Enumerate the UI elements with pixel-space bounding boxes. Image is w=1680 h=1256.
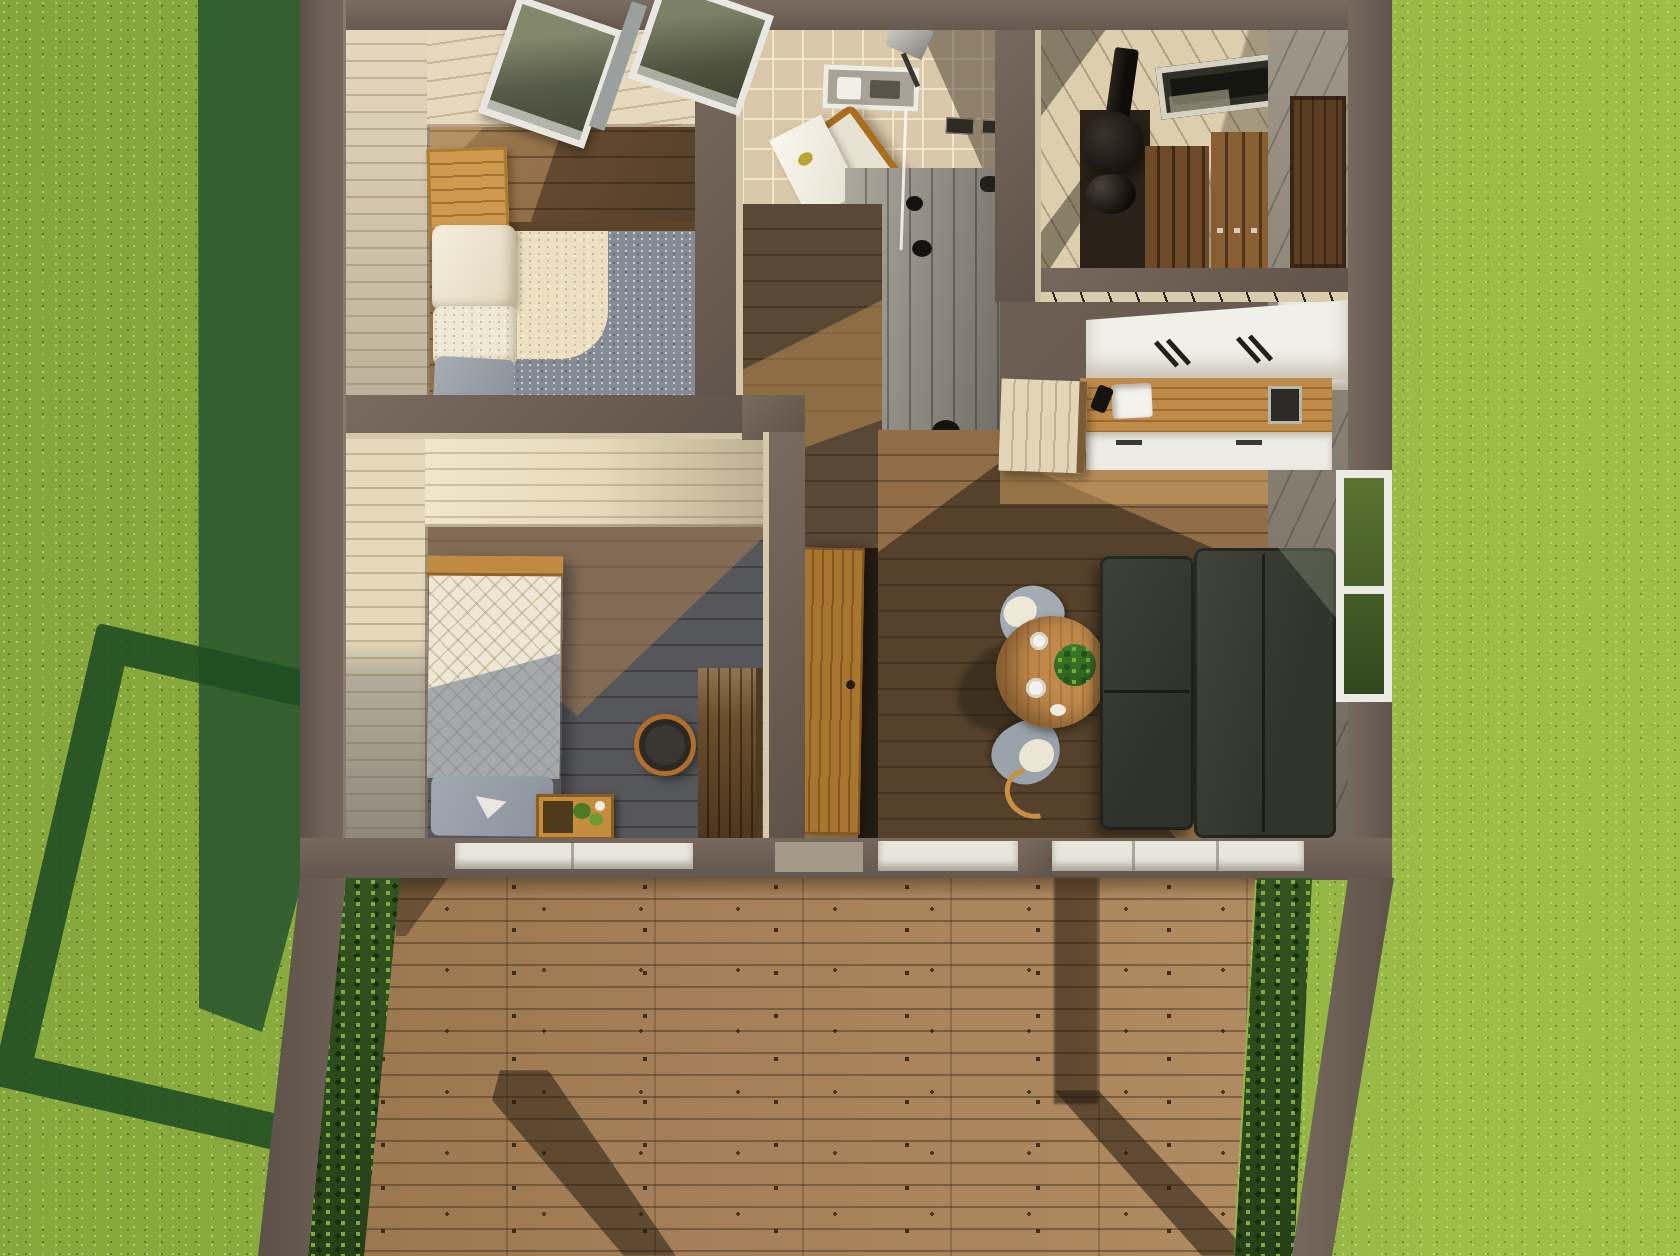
window-mullion [1344,586,1384,594]
wall-outlets [1268,386,1302,424]
slatted-side-table [698,668,762,838]
sofa-chaise-seam [1104,690,1190,693]
sofa-main-seam [1262,554,1265,832]
wall-bed1-bed2-divider [345,395,765,439]
bed2-blanket-shadow [427,575,561,778]
bedroom1-wall-left [345,28,430,438]
table-cup-2 [1026,678,1046,698]
right-wall-window [1336,470,1392,702]
sofa-sunlit-corner [1278,548,1336,618]
dining-table [996,616,1108,728]
outer-wall-right [1348,0,1392,878]
bed2-blanket [427,575,561,778]
crate-nightstand [536,794,614,840]
living-window-bench-2 [1052,841,1304,871]
drain-2 [912,240,932,257]
kitchen-cabinets-white [1086,432,1332,470]
table-cup-1 [1030,632,1048,650]
sauna-bench-lower [1145,146,1209,268]
bench-seam-3 [1216,841,1219,871]
bench-seam-2 [1132,841,1135,871]
living-window-bench-1 [878,841,1018,871]
kitchen-faucet [1090,384,1115,414]
outer-wall-left [300,0,346,878]
kitchen-backwall-tick-band [1000,292,1348,302]
bench-pier [1018,840,1052,876]
outer-wall-top [300,0,1392,30]
round-stool [634,714,696,776]
entry-threshold [775,842,863,872]
bedroom2-wall-left [345,438,428,838]
sauna-stove [1082,112,1144,176]
stool-seat [645,725,685,765]
post-shadow-vertical [1054,878,1098,1104]
deck-wall-shade-strip [398,878,1255,896]
table-plant [1054,644,1096,686]
niche-tray [870,80,901,99]
cabinet-handle-2 [1236,440,1262,445]
bench-seam-1 [571,843,574,869]
kitchen-sink [1111,383,1153,419]
pillow-motif [476,792,509,820]
table-dish [1050,704,1066,716]
daybed-cushion-1 [432,225,516,311]
crate-plant-2 [589,813,603,826]
stove-kettle [1086,174,1136,214]
door-handle [846,680,855,689]
bath-control-panel-1 [946,117,975,134]
niche-bottle [837,77,862,100]
kitchen-end-partition [998,379,1087,474]
deck [360,878,1260,1256]
kitchen-worktop-wood [1080,378,1332,432]
crate-plant-1 [573,803,591,819]
sofa-chaise [1100,556,1194,830]
bedroom2-wall-top [425,438,765,527]
tall-wood-cabinet [1290,96,1346,268]
crate-cup [595,801,605,811]
wall-niche [822,64,919,111]
bedroom2-window-bench [455,843,693,869]
render-scene [0,0,1680,1256]
drain-1 [906,196,923,211]
roof-window-glint [1169,89,1231,112]
open-wooden-door [798,547,865,834]
cabinet-handle-1 [1116,440,1142,445]
wall-bed2-hall [763,432,805,838]
sofa-main [1194,548,1336,838]
bed2-pillow [431,775,554,836]
wall-bath-sauna [995,0,1041,302]
crate-interior [543,801,573,833]
kitchen-sunlit-floor-strip [1000,470,1268,504]
